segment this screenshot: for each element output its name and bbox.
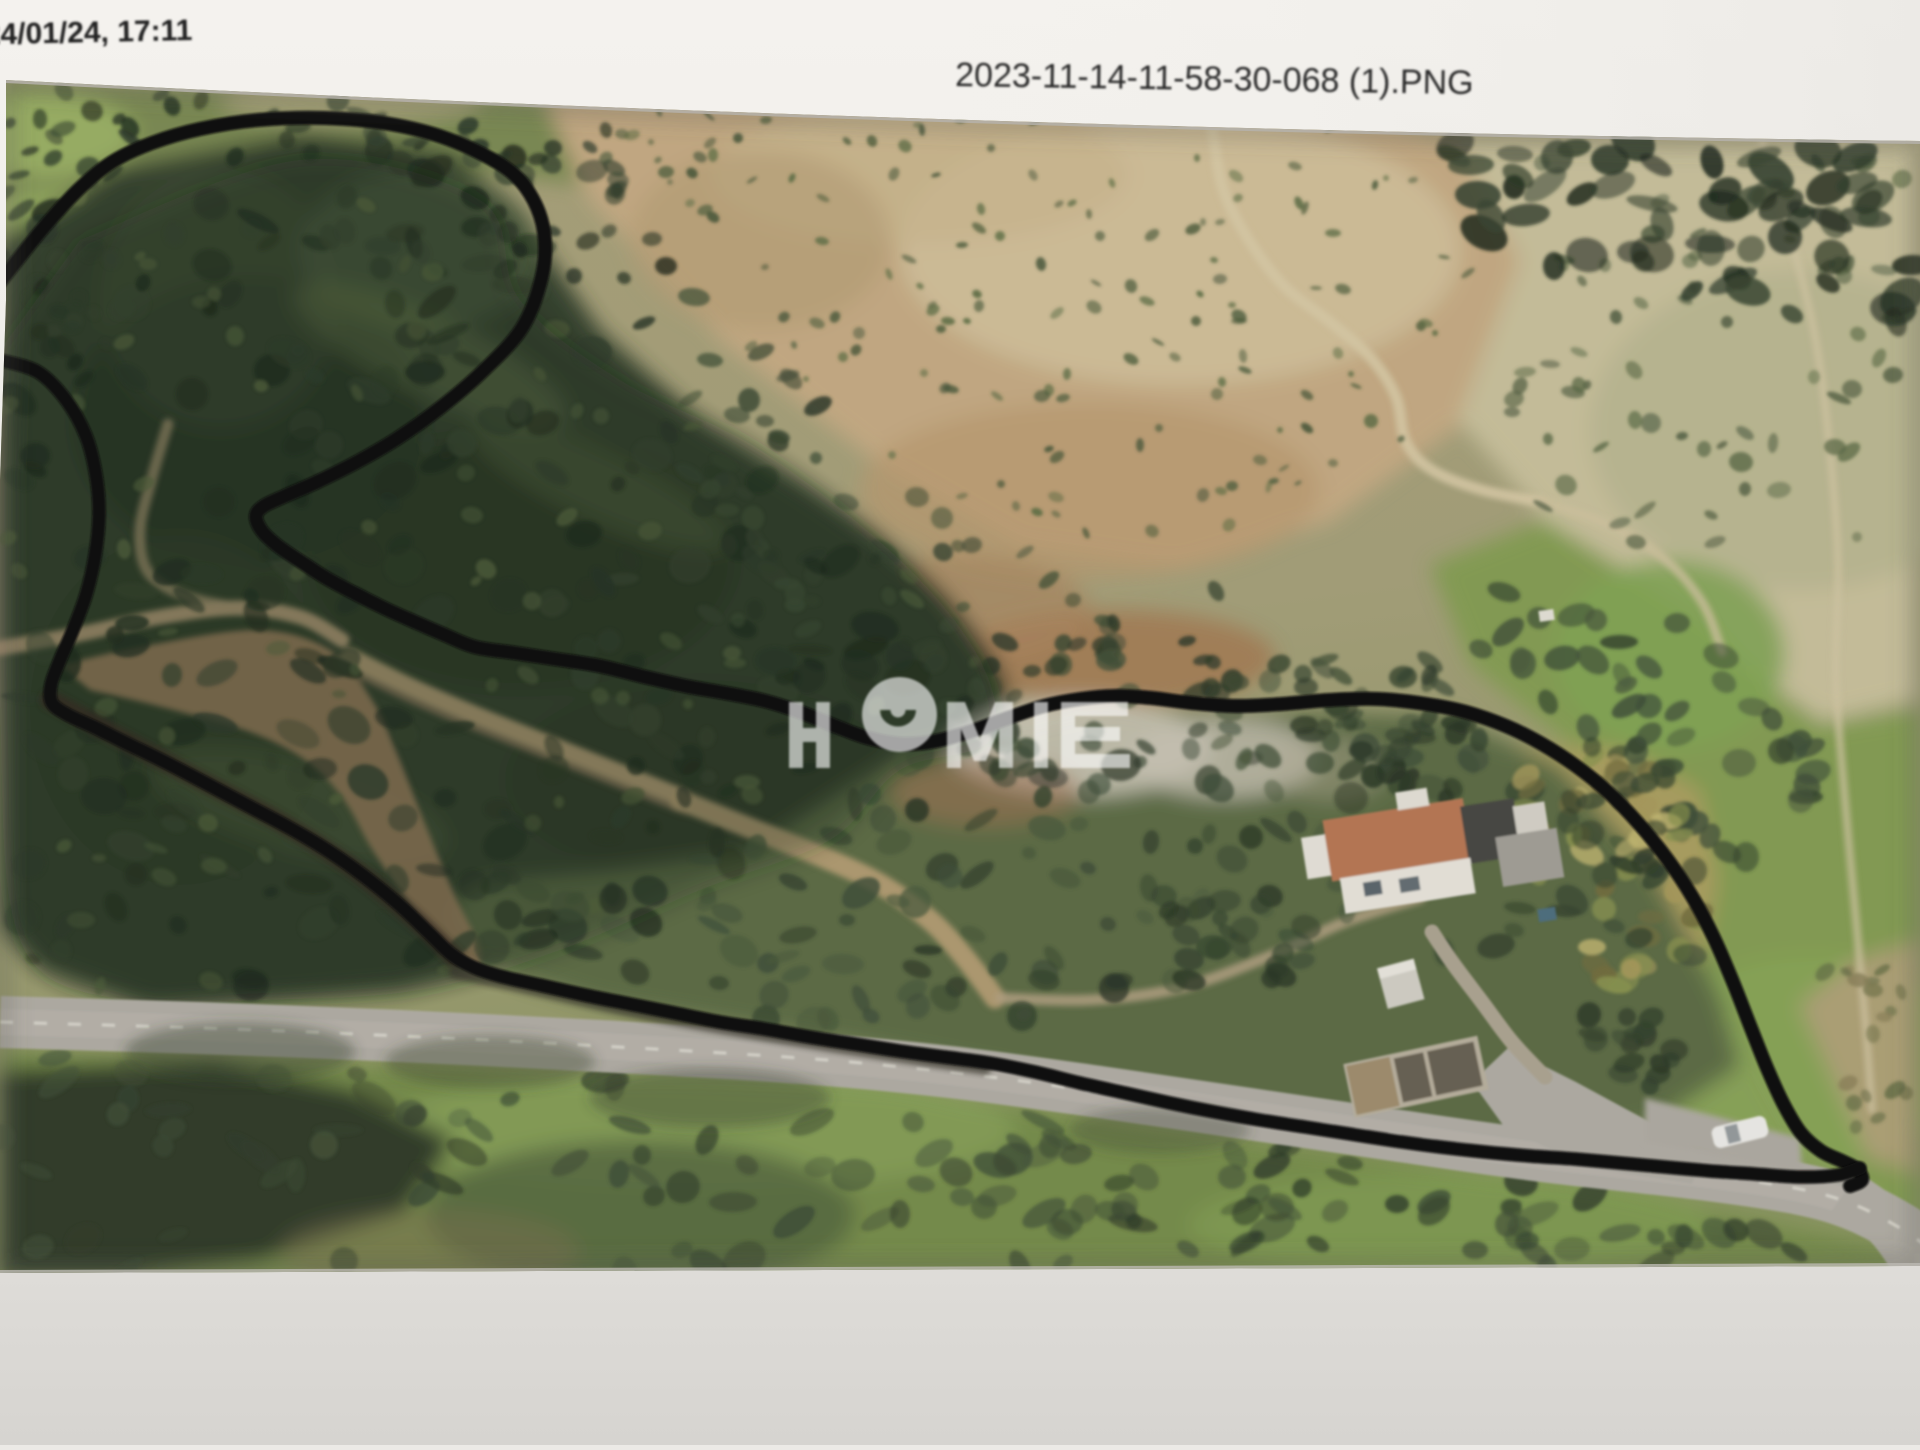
svg-text:2023-11-14-11-58-30-068 (1).PN: 2023-11-14-11-58-30-068 (1).PNG (955, 56, 1474, 102)
svg-text:24/01/24, 17:11: 24/01/24, 17:11 (0, 14, 193, 51)
